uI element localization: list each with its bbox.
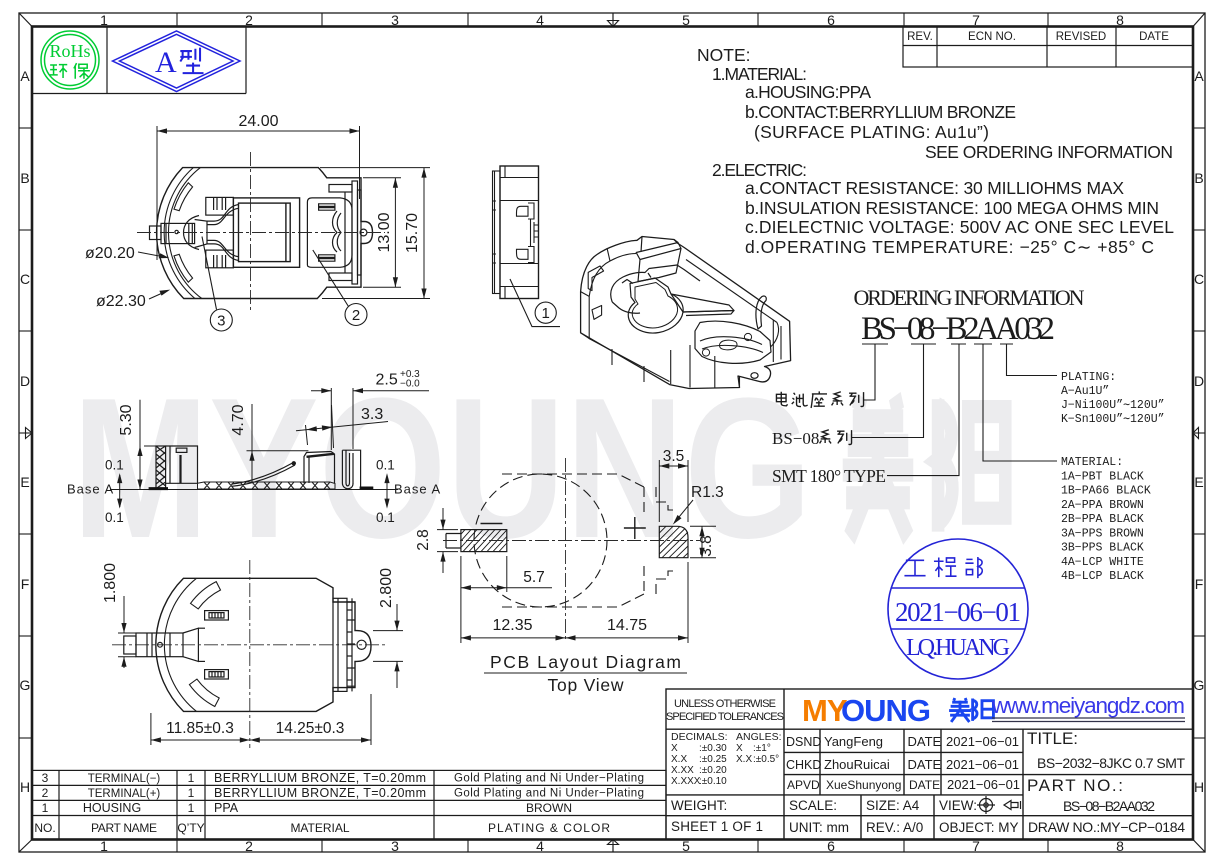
svg-text:4: 4: [536, 838, 544, 854]
svg-text:3: 3: [391, 838, 399, 854]
svg-text:b.INSULATION RESISTANCE: 100 M: b.INSULATION RESISTANCE: 100 MEGA OHMS M…: [745, 198, 1159, 218]
svg-text:DATE: DATE: [1139, 31, 1169, 43]
svg-text:4A−LCP WHITE: 4A−LCP WHITE: [1061, 556, 1144, 569]
svg-text:1: 1: [188, 771, 195, 785]
svg-text:WEIGHT:: WEIGHT:: [671, 798, 727, 813]
svg-text:A−Au1U”: A−Au1U”: [1061, 385, 1109, 398]
svg-text:H: H: [20, 779, 30, 795]
svg-text:B: B: [1194, 170, 1203, 186]
svg-text:A: A: [20, 68, 30, 84]
svg-text:DECIMALS:: DECIMALS:: [671, 731, 728, 743]
svg-text:5: 5: [682, 12, 690, 28]
svg-text:c.DIELECTNIC VOLTAGE: 500V AC: c.DIELECTNIC VOLTAGE: 500V AC ONE SEC LE…: [745, 217, 1174, 237]
svg-text:1A−PBT BLACK: 1A−PBT BLACK: [1061, 470, 1144, 483]
svg-text:2.800: 2.800: [378, 568, 395, 608]
svg-text:X: X: [671, 743, 678, 754]
svg-text:6: 6: [827, 12, 835, 28]
svg-text:7: 7: [972, 12, 980, 28]
svg-text:1: 1: [42, 801, 49, 815]
svg-text:1: 1: [188, 801, 195, 815]
svg-text:1: 1: [100, 838, 108, 854]
svg-text:SEE ORDERING INFORMATION: SEE ORDERING INFORMATION: [925, 142, 1173, 162]
svg-text:NO.: NO.: [34, 821, 55, 835]
svg-text:REVISED: REVISED: [1056, 31, 1107, 43]
svg-text:4.70: 4.70: [230, 404, 247, 435]
svg-text:X: X: [736, 743, 743, 754]
svg-text:RoHs: RoHs: [49, 41, 90, 61]
svg-text:BERRYLLIUM BRONZE, T=0.20mm: BERRYLLIUM BRONZE, T=0.20mm: [214, 786, 426, 800]
svg-text:2A−PPA BROWN: 2A−PPA BROWN: [1061, 499, 1144, 512]
svg-text:D: D: [1194, 373, 1204, 389]
svg-text:B: B: [20, 170, 29, 186]
svg-text:13.00: 13.00: [376, 212, 393, 252]
svg-text:PLATING:: PLATING:: [1061, 371, 1116, 384]
svg-text:0.1: 0.1: [376, 458, 395, 473]
svg-text:VIEW:: VIEW:: [939, 798, 977, 813]
svg-text:SCALE:: SCALE:: [789, 798, 837, 813]
svg-text:3A−PPS BROWN: 3A−PPS BROWN: [1061, 527, 1144, 540]
svg-text:ECN NO.: ECN NO.: [968, 31, 1016, 43]
svg-text:PPA: PPA: [214, 801, 239, 815]
svg-text:REV.: A/0: REV.: A/0: [866, 820, 923, 835]
svg-text:C: C: [1194, 271, 1204, 287]
svg-text:X.XX: X.XX: [671, 765, 694, 776]
svg-text:Base A: Base A: [394, 482, 441, 497]
svg-text:2B−PPA BLACK: 2B−PPA BLACK: [1061, 513, 1144, 526]
svg-text:11.85±0.3: 11.85±0.3: [166, 720, 234, 737]
svg-text:UNLESS OTHERWISE: UNLESS OTHERWISE: [674, 698, 776, 710]
svg-text:1.MATERIAL:: 1.MATERIAL:: [712, 64, 807, 84]
svg-text:2.8: 2.8: [415, 529, 432, 551]
svg-text:J−Ni100U”∼120U”: J−Ni100U”∼120U”: [1061, 399, 1165, 412]
svg-text:HOUSING: HOUSING: [83, 801, 141, 815]
svg-text:APVD: APVD: [787, 778, 820, 792]
svg-text:−0.0: −0.0: [400, 379, 420, 390]
svg-text:14.75: 14.75: [607, 617, 647, 634]
svg-text:XueShunyong: XueShunyong: [826, 778, 901, 792]
svg-text:6: 6: [827, 838, 835, 854]
svg-text:X.XXX: X.XXX: [671, 776, 701, 787]
svg-text:www.meiyangdz.com: www.meiyangdz.com: [991, 693, 1185, 718]
svg-text:d.OPERATING TEMPERATURE: −25°: d.OPERATING TEMPERATURE: −25° C∼ +85° C: [745, 237, 1154, 257]
svg-text:2: 2: [42, 786, 49, 800]
svg-text:2021−06−01: 2021−06−01: [946, 734, 1019, 749]
svg-text:4B−LCP BLACK: 4B−LCP BLACK: [1061, 570, 1144, 583]
svg-text:SMT 180° TYPE: SMT 180° TYPE: [772, 466, 886, 486]
svg-text:TITLE:: TITLE:: [1027, 729, 1078, 748]
svg-text:(SURFACE PLATING: Au1u”): (SURFACE PLATING: Au1u”): [754, 122, 989, 142]
svg-text::±0.25: :±0.25: [699, 754, 727, 765]
svg-text:1.800: 1.800: [102, 563, 119, 603]
svg-text:3.5: 3.5: [663, 448, 685, 465]
svg-text:ø22.30: ø22.30: [96, 293, 146, 310]
svg-text:DSND: DSND: [786, 735, 821, 749]
svg-text:1: 1: [188, 786, 195, 800]
svg-text:3: 3: [217, 313, 225, 330]
svg-text:BROWN: BROWN: [526, 801, 572, 815]
svg-text:D: D: [20, 373, 30, 389]
svg-text:3: 3: [391, 12, 399, 28]
svg-text:2021−06−01: 2021−06−01: [947, 777, 1020, 792]
svg-text:REV.: REV.: [907, 31, 933, 43]
svg-text:5.30: 5.30: [118, 404, 135, 435]
svg-text:BS−08−B2AA032: BS−08−B2AA032: [1063, 798, 1155, 814]
svg-text:A: A: [1194, 68, 1204, 84]
svg-text:8: 8: [1116, 838, 1124, 854]
svg-text:MATERIAL:: MATERIAL:: [1061, 456, 1123, 469]
svg-text:LQ.HUANG: LQ.HUANG: [906, 635, 1010, 661]
svg-text:X.X: X.X: [671, 754, 687, 765]
svg-text:PART NO.:: PART NO.:: [1027, 776, 1123, 795]
svg-text:C: C: [20, 271, 30, 287]
svg-text:K−Sn100U”∼120U”: K−Sn100U”∼120U”: [1061, 413, 1165, 426]
svg-text:X.X: X.X: [736, 754, 752, 765]
svg-text:TERMINAL(−): TERMINAL(−): [88, 773, 161, 785]
svg-text:DATE: DATE: [909, 778, 940, 792]
svg-text:PART NAME: PART NAME: [91, 821, 157, 835]
svg-text:OBJECT: MY: OBJECT: MY: [939, 820, 1019, 835]
svg-text:5: 5: [682, 838, 690, 854]
svg-text:14.25±0.3: 14.25±0.3: [276, 720, 345, 737]
svg-text:F: F: [1195, 576, 1204, 592]
svg-text:DATE: DATE: [908, 734, 942, 749]
svg-text:2.5: 2.5: [376, 371, 398, 388]
svg-text:2: 2: [245, 12, 253, 28]
svg-text:2.ELECTRIC:: 2.ELECTRIC:: [712, 160, 807, 180]
svg-text::±0.30: :±0.30: [699, 743, 727, 754]
svg-text:0.1: 0.1: [105, 510, 124, 525]
svg-text:E: E: [20, 474, 29, 490]
svg-text:2021−06−01: 2021−06−01: [895, 597, 1021, 627]
svg-text:4: 4: [536, 12, 544, 28]
svg-text:UNIT: mm: UNIT: mm: [789, 820, 849, 835]
svg-text:OUNG: OUNG: [841, 693, 930, 728]
svg-text:15.70: 15.70: [404, 213, 421, 253]
svg-text:Gold Plating and Ni Under−Plat: Gold Plating and Ni Under−Plating: [454, 773, 644, 785]
svg-text:R1.3: R1.3: [691, 484, 724, 501]
svg-text:Base A: Base A: [67, 482, 114, 497]
svg-text:1B−PA66 BLACK: 1B−PA66 BLACK: [1061, 485, 1151, 498]
svg-text:SHEET 1 OF 1: SHEET 1 OF 1: [671, 819, 763, 834]
svg-text:ORDERING INFORMATION: ORDERING INFORMATION: [854, 285, 1085, 310]
svg-text:Top View: Top View: [548, 675, 624, 695]
svg-text:BS−08: BS−08: [772, 429, 819, 448]
svg-text:NOTE:: NOTE:: [697, 45, 750, 65]
svg-text:TERMINAL(+): TERMINAL(+): [88, 788, 161, 800]
svg-text:8: 8: [1116, 12, 1124, 28]
svg-text::±0.20: :±0.20: [699, 765, 727, 776]
svg-text:E: E: [1194, 474, 1203, 490]
svg-text:SPECIFIED TOLERANCES: SPECIFIED TOLERANCES: [666, 711, 784, 723]
svg-text:b.CONTACT:BERRYLLIUM BRONZE: b.CONTACT:BERRYLLIUM BRONZE: [745, 102, 1016, 122]
svg-text:2: 2: [352, 307, 360, 324]
svg-text:PCB Layout Diagram: PCB Layout Diagram: [490, 652, 681, 672]
svg-text:CHKD: CHKD: [786, 758, 821, 772]
svg-text:ANGLES:: ANGLES:: [736, 731, 782, 743]
svg-text:0.1: 0.1: [105, 458, 124, 473]
svg-text:24.00: 24.00: [238, 113, 278, 130]
svg-text:Q’TY: Q’TY: [177, 821, 204, 835]
svg-text:12.35: 12.35: [492, 617, 532, 634]
svg-text:BERRYLLIUM BRONZE, T=0.20mm: BERRYLLIUM BRONZE, T=0.20mm: [214, 771, 426, 785]
svg-text:ø20.20: ø20.20: [85, 245, 135, 262]
svg-text:DATE: DATE: [908, 757, 942, 772]
svg-text:DRAW NO.:MY−CP−0184: DRAW NO.:MY−CP−0184: [1028, 819, 1185, 835]
svg-text::±0.5°: :±0.5°: [753, 754, 779, 765]
svg-text:G: G: [1194, 677, 1205, 693]
svg-text:MATERIAL: MATERIAL: [290, 821, 349, 835]
svg-text:BS−2032−8JKC 0.7 SMT: BS−2032−8JKC 0.7 SMT: [1037, 755, 1185, 771]
svg-text:Gold Plating and Ni Under−Plat: Gold Plating and Ni Under−Plating: [454, 788, 644, 800]
svg-text::±1°: :±1°: [753, 743, 771, 754]
svg-text:3: 3: [42, 771, 49, 785]
svg-text:G: G: [20, 677, 31, 693]
svg-text:H: H: [1194, 779, 1204, 795]
svg-text:7: 7: [972, 838, 980, 854]
svg-text:ZhouRuicai: ZhouRuicai: [824, 757, 890, 772]
svg-text:BS−08−B2AA032: BS−08−B2AA032: [861, 311, 1055, 347]
svg-text:YangFeng: YangFeng: [824, 734, 883, 749]
svg-text:3.3: 3.3: [361, 406, 383, 423]
svg-text:a.HOUSING:PPA: a.HOUSING:PPA: [745, 82, 871, 102]
svg-text:3.8: 3.8: [698, 535, 715, 557]
svg-text:5.7: 5.7: [523, 569, 545, 586]
svg-text:PLATING & COLOR: PLATING & COLOR: [488, 821, 610, 835]
svg-text:1: 1: [100, 12, 108, 28]
svg-text:1: 1: [542, 305, 550, 322]
svg-text:2021−06−01: 2021−06−01: [946, 757, 1019, 772]
svg-text:3B−PPS BLACK: 3B−PPS BLACK: [1061, 542, 1144, 555]
svg-text:F: F: [21, 576, 30, 592]
svg-text:2: 2: [245, 838, 253, 854]
svg-text::±0.10: :±0.10: [699, 776, 727, 787]
svg-text:A: A: [155, 46, 177, 79]
svg-text:0.1: 0.1: [376, 510, 395, 525]
svg-text:SIZE: A4: SIZE: A4: [866, 798, 920, 813]
svg-text:a.CONTACT RESISTANCE: 30 MILLI: a.CONTACT RESISTANCE: 30 MILLIOHMS MAX: [745, 178, 1124, 198]
